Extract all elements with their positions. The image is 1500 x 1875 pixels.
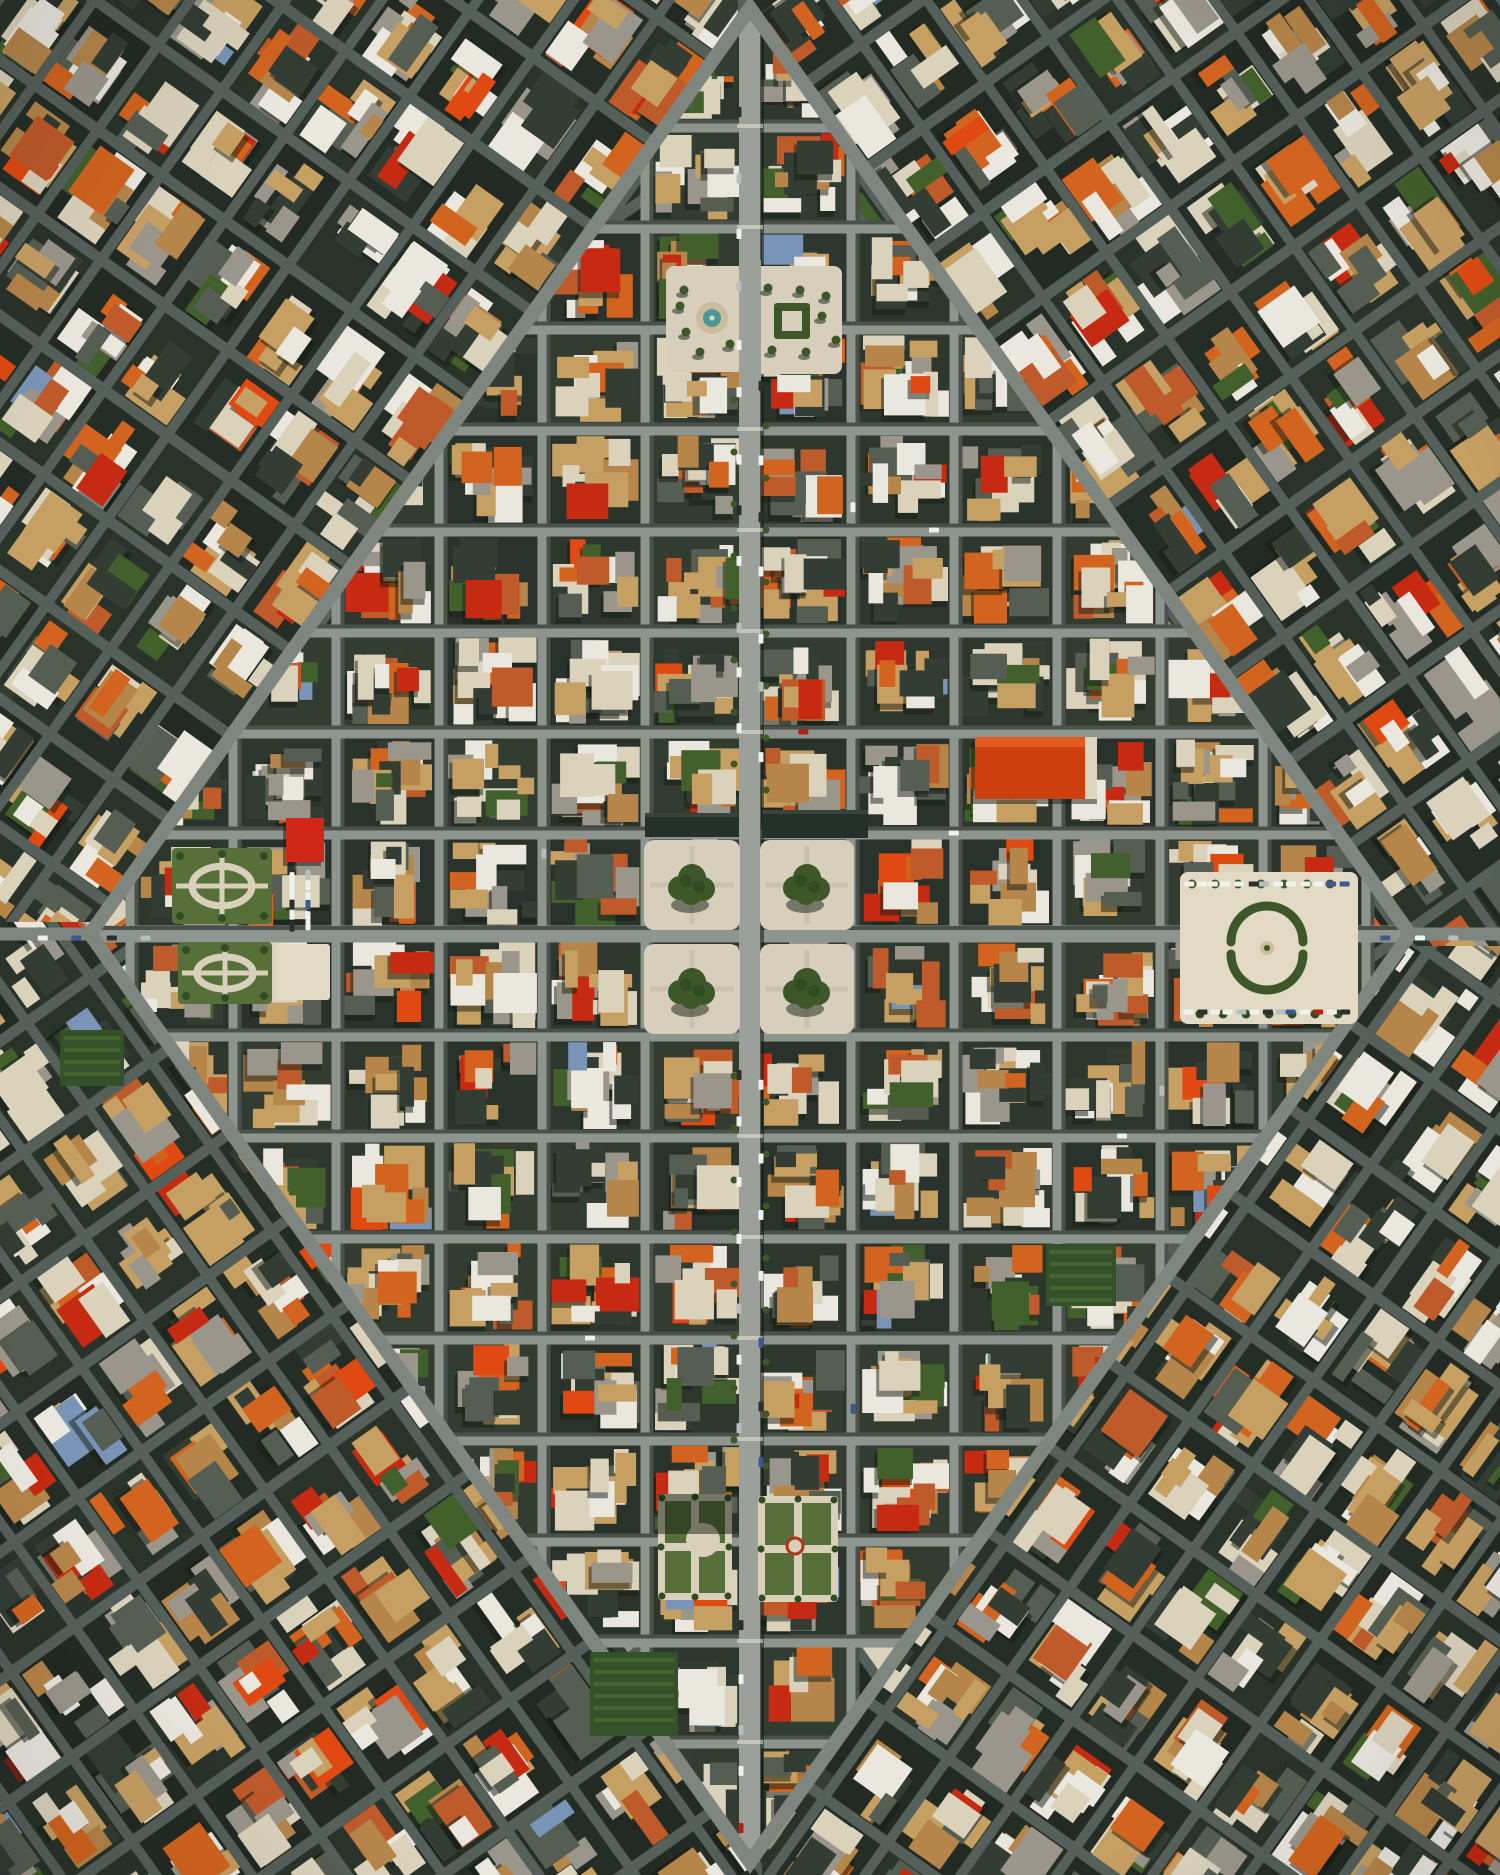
aerial-photo-canvas <box>0 0 1500 1875</box>
aerial-photograph <box>0 0 1500 1875</box>
